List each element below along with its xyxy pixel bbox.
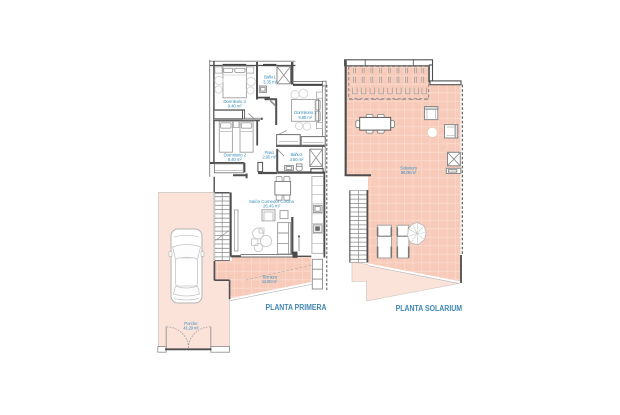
svg-text:3.35 m²: 3.35 m² <box>263 79 278 84</box>
svg-text:PLANTA SOLARIUM: PLANTA SOLARIUM <box>396 303 463 313</box>
svg-text:9.88 m²: 9.88 m² <box>298 115 313 120</box>
svg-text:86.06 m²: 86.06 m² <box>401 170 417 175</box>
svg-text:12.80 m²: 12.80 m² <box>262 279 278 284</box>
svg-text:9.40 m²: 9.40 m² <box>228 104 243 109</box>
svg-text:8.40 m²: 8.40 m² <box>228 157 243 162</box>
svg-text:41.29 m²: 41.29 m² <box>183 326 199 331</box>
svg-text:2.95 m²: 2.95 m² <box>262 155 277 160</box>
svg-text:3.80 m²: 3.80 m² <box>290 157 305 162</box>
svg-text:PLANTA PRIMERA: PLANTA PRIMERA <box>266 302 328 312</box>
svg-text:26.45 m²: 26.45 m² <box>263 204 281 209</box>
